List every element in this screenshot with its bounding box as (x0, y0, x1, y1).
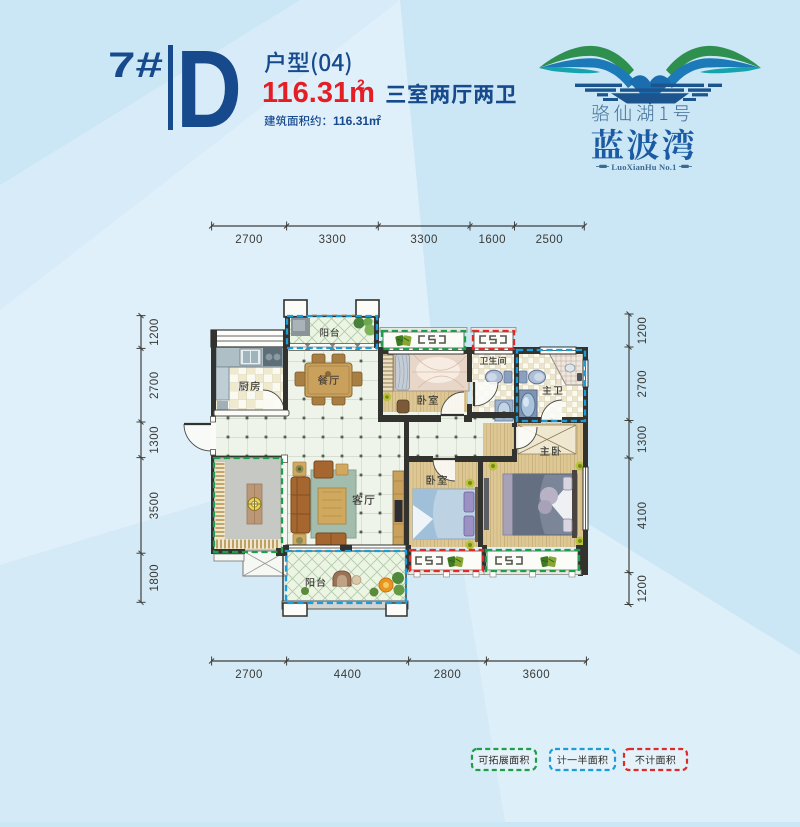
svg-text:2800: 2800 (434, 669, 462, 681)
svg-text:2700: 2700 (149, 371, 161, 399)
svg-text:2700: 2700 (637, 370, 649, 398)
svg-text:1300: 1300 (149, 426, 161, 454)
svg-text:1300: 1300 (637, 425, 649, 453)
svg-text:2700: 2700 (235, 234, 263, 246)
svg-text:D: D (176, 28, 242, 151)
svg-text:3300: 3300 (319, 234, 347, 246)
svg-text:1200: 1200 (149, 318, 161, 346)
svg-text:LuoXianHu No.1: LuoXianHu No.1 (611, 162, 676, 172)
svg-text:1200: 1200 (637, 317, 649, 345)
svg-text:1600: 1600 (478, 234, 506, 246)
svg-text:2700: 2700 (235, 669, 263, 681)
svg-text:1800: 1800 (149, 564, 161, 592)
svg-text:3500: 3500 (149, 492, 161, 520)
svg-text:4100: 4100 (637, 502, 649, 530)
svg-text:4400: 4400 (334, 669, 362, 681)
svg-text:3300: 3300 (410, 234, 438, 246)
svg-text:3600: 3600 (523, 669, 551, 681)
svg-text:2: 2 (357, 76, 365, 92)
svg-text:116.31m: 116.31m (333, 114, 380, 128)
svg-text:2: 2 (377, 113, 381, 122)
svg-text:1200: 1200 (637, 575, 649, 603)
svg-text:7#: 7# (108, 46, 163, 85)
svg-text:2500: 2500 (536, 234, 564, 246)
